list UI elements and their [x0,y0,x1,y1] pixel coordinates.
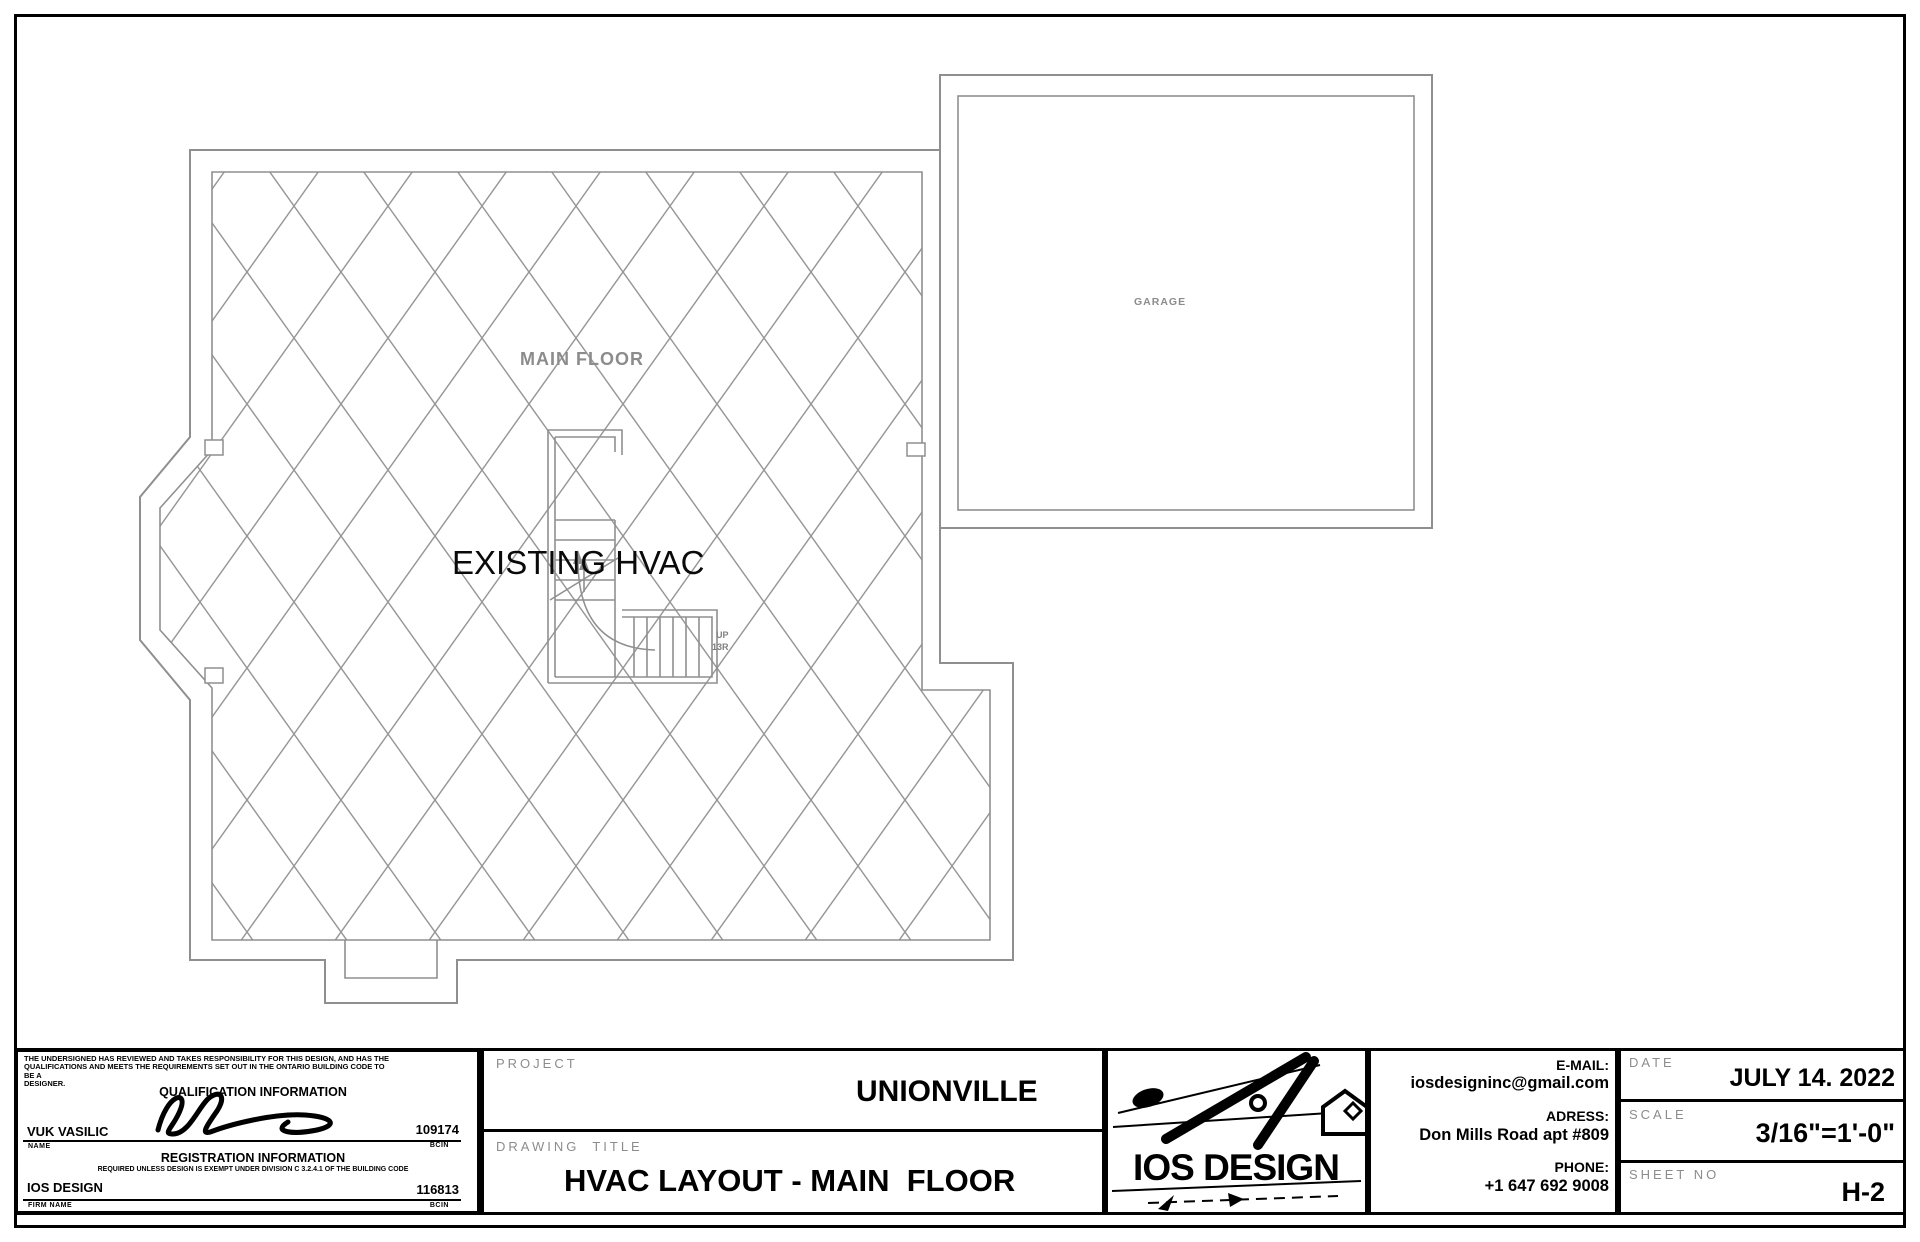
sheet-no-value: H-2 [1841,1177,1885,1208]
signature [133,1082,373,1148]
drawing-sheet: UP 13R MAIN FLOOR GARAGE EXISTING HVAC T… [0,0,1920,1242]
date-scale-sheet-block: DATE JULY 14. 2022 SCALE 3/16"=1'-0" SHE… [1618,1048,1906,1215]
stair-up-label: UP [716,630,729,640]
phone-value: +1 647 692 9008 [1485,1177,1609,1196]
divider [23,1140,461,1142]
date-value: JULY 14. 2022 [1730,1064,1895,1093]
qualification-block: THE UNDERSIGNED HAS REVIEWED AND TAKES R… [14,1048,481,1215]
sheet-no-label: SHEET NO [1629,1167,1719,1182]
project-block: PROJECT UNIONVILLE DRAWING TITLE HVAC LA… [481,1048,1105,1215]
firm-name: IOS DESIGN [27,1180,103,1195]
divider [484,1129,1102,1132]
floor-plan: UP 13R MAIN FLOOR GARAGE EXISTING HVAC [0,0,1920,1048]
firm-bcin: 116813 [416,1182,459,1197]
drawing-title-label: DRAWING TITLE [496,1139,643,1154]
scale-label: SCALE [1629,1107,1687,1122]
logo-text: IOS DESIGN [1133,1147,1339,1188]
phone-label: PHONE: [1555,1159,1609,1175]
date-label: DATE [1629,1055,1675,1070]
ios-design-logo: IOS DESIGN [1108,1051,1365,1212]
project-label: PROJECT [496,1056,578,1071]
main-floor-label: MAIN FLOOR [520,349,644,369]
project-value: UNIONVILLE [856,1075,1038,1109]
divider [1621,1099,1903,1102]
scale-value: 3/16"=1'-0" [1756,1118,1895,1149]
registration-note: REQUIRED UNLESS DESIGN IS EXEMPT UNDER D… [48,1166,458,1174]
garage-label: GARAGE [1134,296,1186,308]
designer-bcin: 109174 [416,1122,459,1137]
registration-title: REGISTRATION INFORMATION [108,1151,398,1165]
address-label: ADRESS: [1546,1108,1609,1124]
firm-name-label: FIRM NAME [28,1202,72,1209]
contact-block: E-MAIL: iosdesigninc@gmail.com ADRESS: D… [1368,1048,1618,1215]
existing-hvac-label: EXISTING HVAC [452,544,704,581]
divider [1621,1160,1903,1163]
door-jamb [907,443,925,456]
drawing-title-value: HVAC LAYOUT - MAIN FLOOR [564,1163,1015,1199]
email-value: iosdesigninc@gmail.com [1410,1074,1609,1093]
address-value: Don Mills Road apt #809 [1419,1126,1609,1145]
divider [23,1199,461,1201]
name-label: NAME [28,1143,51,1150]
bcin-label: BCIN [430,1202,449,1209]
bcin-label: BCIN [430,1142,449,1149]
stair-risers-label: 13R [712,642,729,652]
designer-name: VUK VASILIC [27,1124,108,1139]
door-jamb [205,668,223,683]
logo-block: IOS DESIGN [1105,1048,1368,1215]
vestibule-inner-wall [345,940,437,978]
door-jamb [205,440,223,455]
email-label: E-MAIL: [1556,1057,1609,1073]
